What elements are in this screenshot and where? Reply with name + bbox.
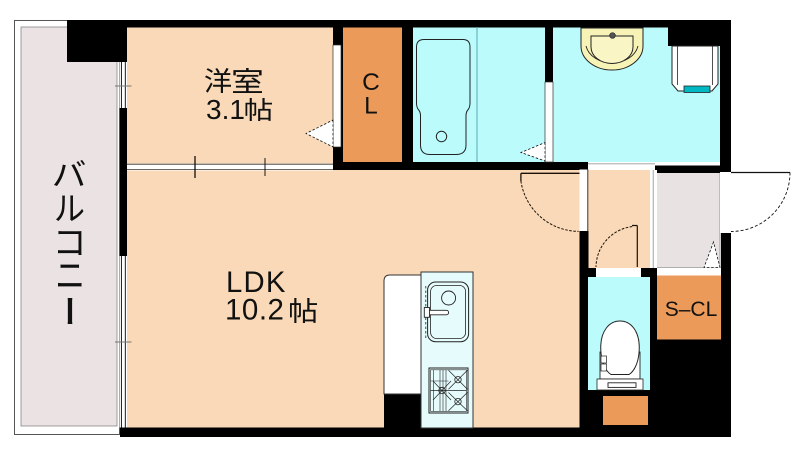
svg-text:10.2: 10.2: [225, 294, 284, 327]
svg-text:S–CL: S–CL: [665, 298, 718, 321]
svg-text:L: L: [364, 92, 378, 119]
svg-text:3.1: 3.1: [206, 94, 245, 125]
